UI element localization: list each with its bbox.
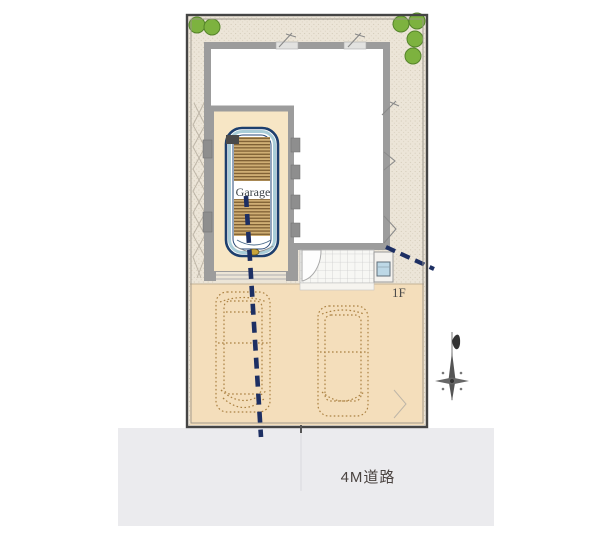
tree-icon [204,19,220,35]
tree-icon [393,16,409,32]
compass-icon [435,332,469,401]
shutter-box [226,135,239,144]
garage-car: Garage [226,128,278,256]
floor-label: 1F [392,285,406,300]
north-arrow-flag [452,335,460,350]
shutter-slats-bottom [234,199,270,236]
plan-drawing: Garage 1F [0,0,600,543]
tree-icon [407,31,423,47]
porch-step [300,283,374,290]
parking-area [190,284,424,425]
garage-label: Garage [236,185,271,199]
site-plan-image: 4M道路 [0,0,600,543]
shutter-slats-top [234,137,270,181]
utility-meter-box [374,252,393,282]
tree-icon [405,48,421,64]
